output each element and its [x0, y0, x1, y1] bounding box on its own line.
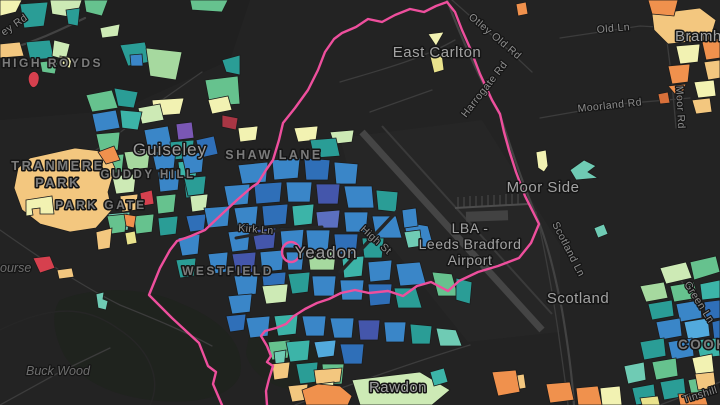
label-rawdon: Rawdon	[369, 379, 427, 396]
label-scotland: Scotland	[547, 290, 609, 307]
label-lba-line3: Airport	[448, 252, 493, 268]
label-lba-line2: Leeds Bradford	[419, 236, 522, 252]
label-park-gate: PARK GATE	[55, 198, 146, 212]
label-yeadon: Yeadon	[294, 243, 357, 262]
label-buck-wood: Buck Wood	[26, 364, 91, 378]
label-moor-rd: Moor Rd	[673, 86, 687, 130]
label-bramhope: Bramhope	[675, 28, 720, 45]
label-course-partial: ourse	[0, 261, 31, 275]
map-svg[interactable]: HIGH ROYDS ey Rd East Carlton Otley Old …	[0, 0, 720, 405]
label-shaw-lane: SHAW LANE	[225, 148, 323, 162]
label-east-carlton: East Carlton	[393, 44, 482, 61]
label-moor-side: Moor Side	[507, 179, 580, 196]
map-canvas[interactable]: HIGH ROYDS ey Rd East Carlton Otley Old …	[0, 0, 720, 405]
label-tranmere-park-2: PARK	[35, 175, 81, 190]
label-guddy-hill: GUDDY HILL	[100, 169, 195, 181]
label-cookridge: COOKRIDGE	[678, 337, 720, 352]
label-westfield: WESTFIELD	[182, 264, 274, 278]
label-guiseley: Guiseley	[133, 140, 207, 159]
label-high-royds: HIGH ROYDS	[2, 56, 103, 70]
label-lba-line1: LBA -	[452, 220, 489, 236]
label-tranmere-park-1: TRANMERE	[11, 158, 105, 173]
